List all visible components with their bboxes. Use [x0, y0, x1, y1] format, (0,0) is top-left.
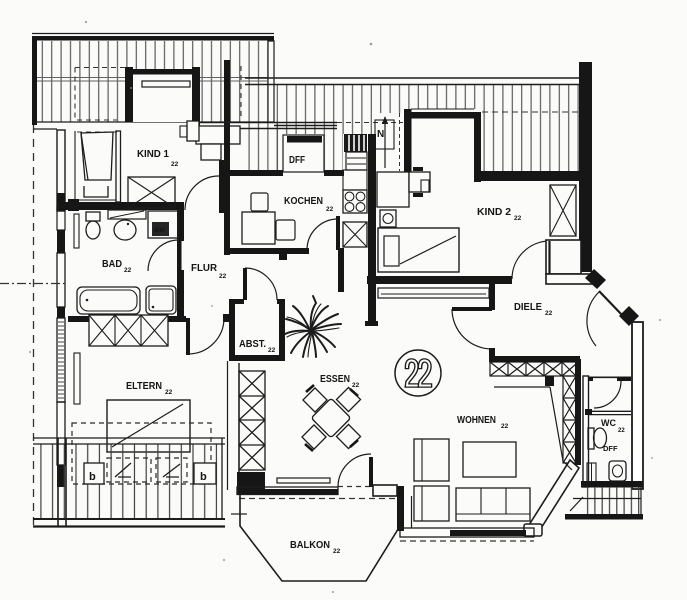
svg-text:22: 22 — [333, 548, 341, 555]
svg-text:WM: WM — [154, 228, 165, 234]
svg-text:b: b — [200, 471, 207, 483]
svg-text:22: 22 — [171, 161, 179, 168]
svg-text:22: 22 — [545, 310, 553, 317]
svg-text:22: 22 — [352, 382, 360, 389]
svg-text:KIND 1: KIND 1 — [137, 148, 169, 160]
svg-text:b: b — [89, 471, 96, 483]
svg-text:22: 22 — [514, 215, 522, 222]
svg-text:ABST.: ABST. — [239, 339, 266, 350]
svg-text:KIND 2: KIND 2 — [477, 206, 511, 218]
svg-text:BALKON: BALKON — [290, 539, 330, 551]
svg-text:DFF: DFF — [603, 444, 618, 453]
svg-text:ELTERN: ELTERN — [126, 380, 162, 392]
svg-text:WC: WC — [601, 418, 616, 428]
svg-text:DFF: DFF — [289, 155, 305, 166]
svg-text:BAD: BAD — [102, 258, 122, 270]
svg-text:ESSEN: ESSEN — [320, 373, 350, 385]
svg-text:22: 22 — [165, 389, 173, 396]
svg-text:FLUR: FLUR — [191, 262, 217, 274]
svg-text:22: 22 — [501, 423, 509, 430]
svg-text:WOHNEN: WOHNEN — [457, 414, 496, 426]
svg-text:KOCHEN: KOCHEN — [284, 195, 323, 207]
svg-text:DIELE: DIELE — [514, 301, 542, 313]
svg-text:22: 22 — [124, 267, 132, 274]
svg-text:22: 22 — [618, 428, 625, 434]
svg-text:22: 22 — [268, 347, 276, 354]
svg-text:22: 22 — [219, 273, 227, 280]
svg-text:N: N — [377, 129, 384, 140]
svg-text:22: 22 — [326, 206, 334, 213]
